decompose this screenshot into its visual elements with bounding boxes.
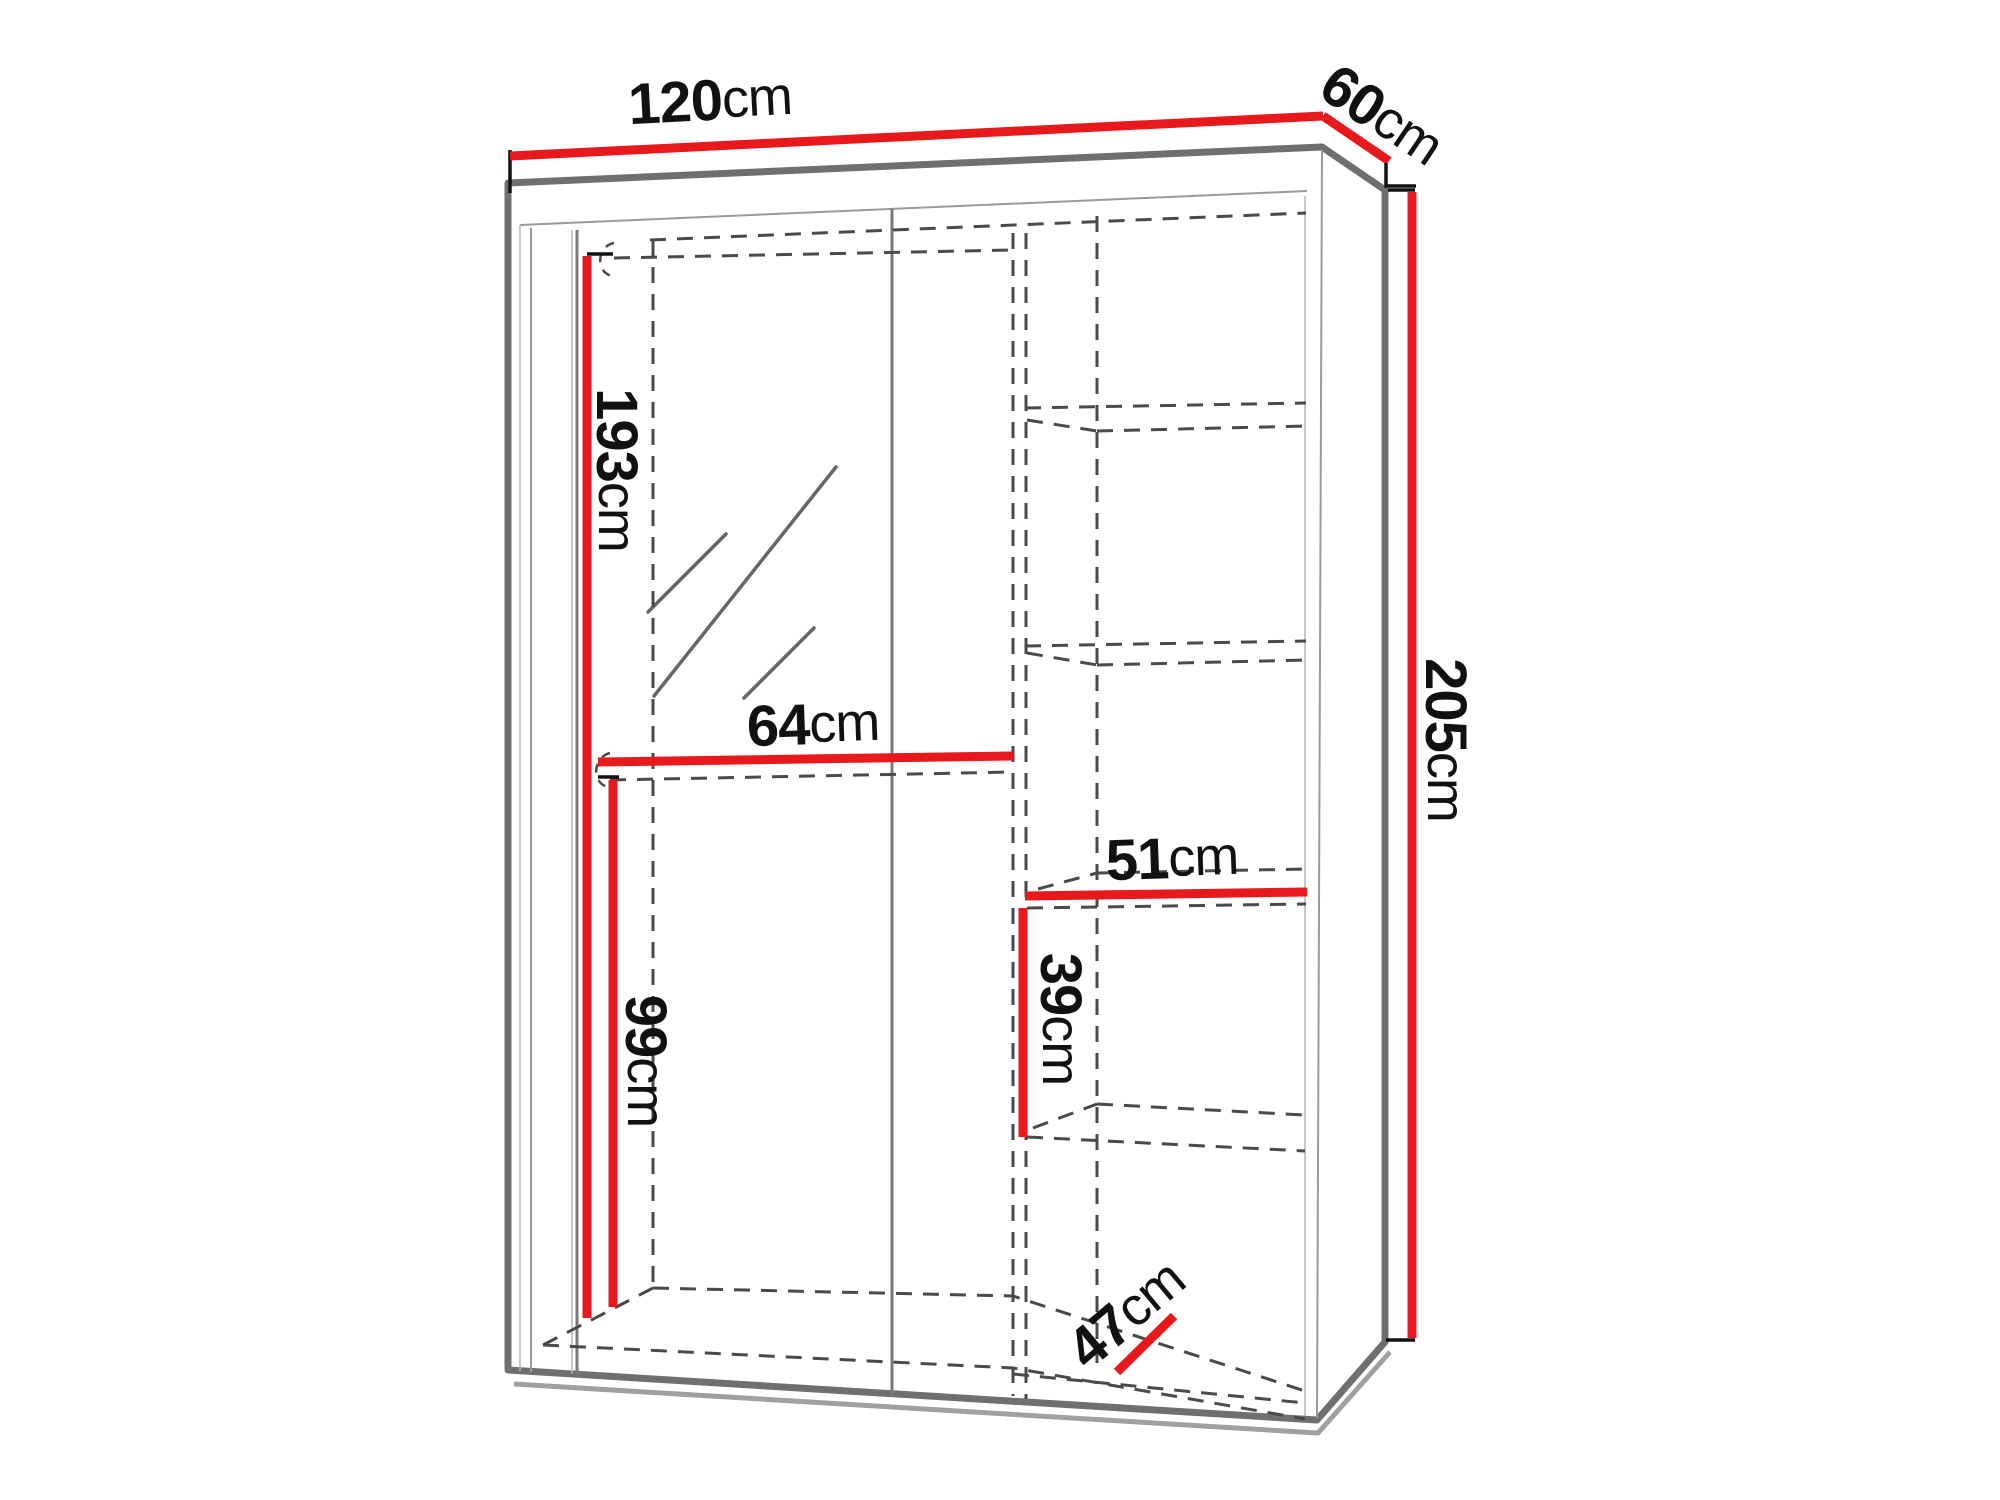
mirror-glints (648, 467, 836, 698)
hanging-section-width-dim-line (598, 756, 1013, 762)
mirror-glint-short-lower (744, 628, 814, 698)
interior-hidden-lines (543, 213, 1306, 1419)
shelf-top-back-edge (1025, 403, 1306, 408)
label-lower-section-height: 99cm (614, 995, 679, 1128)
mirror-glint-long (654, 467, 836, 696)
shelf-second-front-edge (1097, 660, 1306, 665)
label-shelf-spacing-height: 39cm (1029, 953, 1094, 1086)
mirror-glint-short-upper (648, 534, 726, 612)
shelf-second-back-edge (1025, 641, 1306, 646)
lower-hanging-rod (610, 772, 1013, 780)
dimension-labels: 120cm 60cm 205cm 193cm 64cm 99cm 51cm 39… (585, 51, 1479, 1381)
upper-rod-bracket (600, 243, 614, 276)
label-overall-width: 120cm (627, 63, 794, 136)
wardrobe-dimension-diagram: 120cm 60cm 205cm 193cm 64cm 99cm 51cm 39… (0, 0, 2000, 1500)
label-interior-height: 193cm (585, 388, 650, 552)
shelf-second-left-edge (1027, 653, 1097, 665)
floor-back-edge (653, 1288, 1305, 1391)
shelf-top-front-edge (1097, 426, 1306, 431)
shelf-bottom-front-edge (1027, 1137, 1305, 1151)
shelf-measured-front-edge (1027, 904, 1306, 908)
shelf-width-dim-line (1025, 892, 1307, 896)
cabinet-front-right-edge (1317, 150, 1322, 1418)
ceiling-back-edge (650, 213, 1306, 240)
label-shelf-width: 51cm (1105, 823, 1240, 893)
label-overall-height: 205cm (1414, 658, 1479, 822)
dimension-lines (510, 116, 1416, 1372)
shelf-bottom-back-edge (1097, 1104, 1305, 1115)
shelf-top (1025, 403, 1306, 431)
upper-hanging-rod (614, 250, 1013, 258)
shelf-top-left-edge (1027, 420, 1097, 431)
shelf-bottom-left-edge (1033, 1104, 1097, 1128)
shelf-bottom (1027, 1104, 1305, 1151)
cabinet-body (508, 147, 1390, 1433)
floor-left-edge (543, 1288, 653, 1345)
label-hanging-section-width: 64cm (746, 689, 881, 759)
floor-outline (543, 1288, 1305, 1419)
diagram-canvas: 120cm 60cm 205cm 193cm 64cm 99cm 51cm 39… (0, 0, 2000, 1500)
shelf-second (1025, 641, 1306, 665)
interior-ceiling-front-edge (520, 191, 1307, 225)
shelf-measured-left-edge (1038, 873, 1097, 889)
base-panel-front-edge (1013, 1374, 1305, 1403)
cabinet-outer-edges (508, 147, 1385, 1420)
